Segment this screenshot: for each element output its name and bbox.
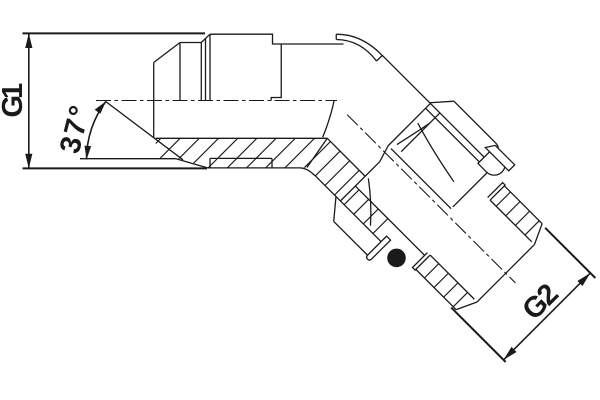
svg-text:G1: G1 (0, 83, 29, 118)
